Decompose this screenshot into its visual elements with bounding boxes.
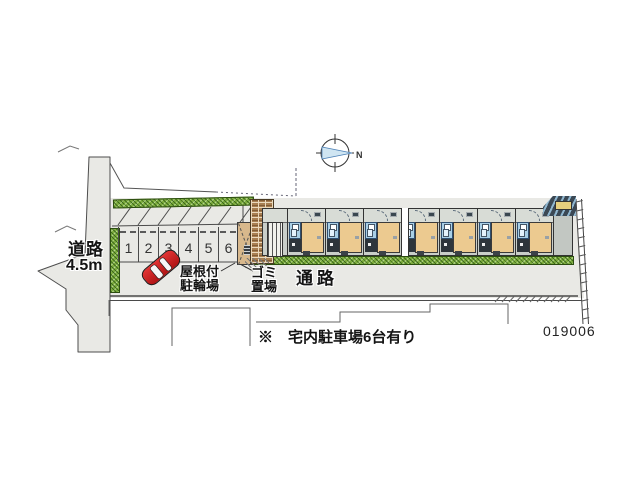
ac-unit-icon	[390, 212, 397, 217]
parking-space-number: 5	[205, 240, 213, 256]
site-boundary-dotted	[216, 192, 296, 196]
bike-parking-label-line2: 駐輪場	[180, 279, 219, 293]
road-width-label: 4.5m	[66, 258, 102, 275]
car-windshield	[150, 264, 164, 279]
ac-unit-icon	[466, 212, 473, 217]
car-rear-window	[159, 257, 172, 271]
plan-note: ※ 宅内駐車場6台有り	[258, 330, 416, 346]
unit-step	[531, 251, 538, 255]
unit-step	[455, 251, 462, 255]
stairs-icon	[267, 222, 283, 257]
apartment-unit	[287, 209, 325, 255]
entry-door-arc	[415, 210, 426, 221]
apartment-unit	[477, 209, 515, 255]
parking-space: 4	[178, 227, 198, 262]
unit-entry	[365, 239, 377, 252]
garbage-label-line1: ゴミ	[251, 266, 277, 280]
boundary-mark	[55, 226, 76, 232]
unit-entry	[289, 239, 301, 252]
hedge-strip-front	[252, 256, 574, 265]
unit-bathroom	[479, 222, 491, 239]
passage-label: 通路	[296, 270, 338, 288]
unit-room	[491, 222, 514, 253]
unit-entry	[441, 239, 453, 252]
boundary-mark	[58, 146, 79, 152]
ac-unit-icon	[428, 212, 435, 217]
apartment-unit	[325, 209, 363, 255]
parking-space-number: 2	[145, 240, 153, 256]
unit-bathroom	[327, 222, 339, 239]
entry-door-arc	[339, 210, 350, 221]
entry-door-arc	[453, 210, 464, 221]
parking-space-number: 4	[185, 240, 193, 256]
ac-unit-icon	[504, 212, 511, 217]
unit-room	[453, 222, 476, 253]
entry-door-arc	[377, 210, 388, 221]
unit-step	[417, 251, 424, 255]
parking-space-number: 6	[225, 240, 233, 256]
compass: N	[316, 134, 363, 172]
unit-entry	[327, 239, 339, 252]
unit-step	[303, 251, 310, 255]
entry-door-arc	[491, 210, 502, 221]
apartment-unit	[439, 209, 477, 255]
unit-row	[287, 209, 553, 255]
unit-bathroom	[365, 222, 377, 239]
unit-step	[493, 251, 500, 255]
canopy-label-box	[555, 201, 572, 210]
apartment-unit	[363, 209, 401, 255]
site-boundary-line	[110, 163, 216, 192]
unit-bathroom	[441, 222, 453, 239]
entry-door-arc	[301, 210, 312, 221]
site-plan: N 123456 道路 4.5m 通路 屋根付 駐輪場 ゴミ 置場 ※ 宅内駐車…	[0, 0, 640, 480]
ac-unit-icon	[314, 212, 321, 217]
ac-unit-icon	[352, 212, 359, 217]
unit-step	[341, 251, 348, 255]
unit-bathroom	[289, 222, 301, 239]
building-joint	[401, 208, 409, 256]
unit-step	[379, 251, 386, 255]
compass-north-label: N	[356, 150, 363, 160]
parking-space: 2	[138, 227, 158, 262]
parking-space-number: 1	[125, 240, 133, 256]
unit-entry	[479, 239, 491, 252]
unit-room	[377, 222, 400, 253]
unit-room	[415, 222, 438, 253]
right-boundary	[582, 199, 589, 324]
parking-space: 1	[118, 227, 138, 262]
parking-space: 5	[198, 227, 218, 262]
plan-number: 019006	[543, 324, 596, 339]
unit-room	[301, 222, 324, 253]
parking-space: 6	[218, 227, 238, 262]
garbage-label: ゴミ 置場	[251, 266, 277, 293]
unit-entry	[517, 239, 529, 252]
bike-parking-label-line1: 屋根付	[180, 265, 219, 279]
garbage-label-line2: 置場	[251, 280, 277, 294]
unit-room	[529, 222, 552, 253]
entry-door-arc	[529, 210, 540, 221]
unit-room	[339, 222, 362, 253]
bike-parking-label: 屋根付 駐輪場	[180, 265, 219, 292]
unit-bathroom	[517, 222, 529, 239]
apartment-building	[262, 208, 573, 256]
